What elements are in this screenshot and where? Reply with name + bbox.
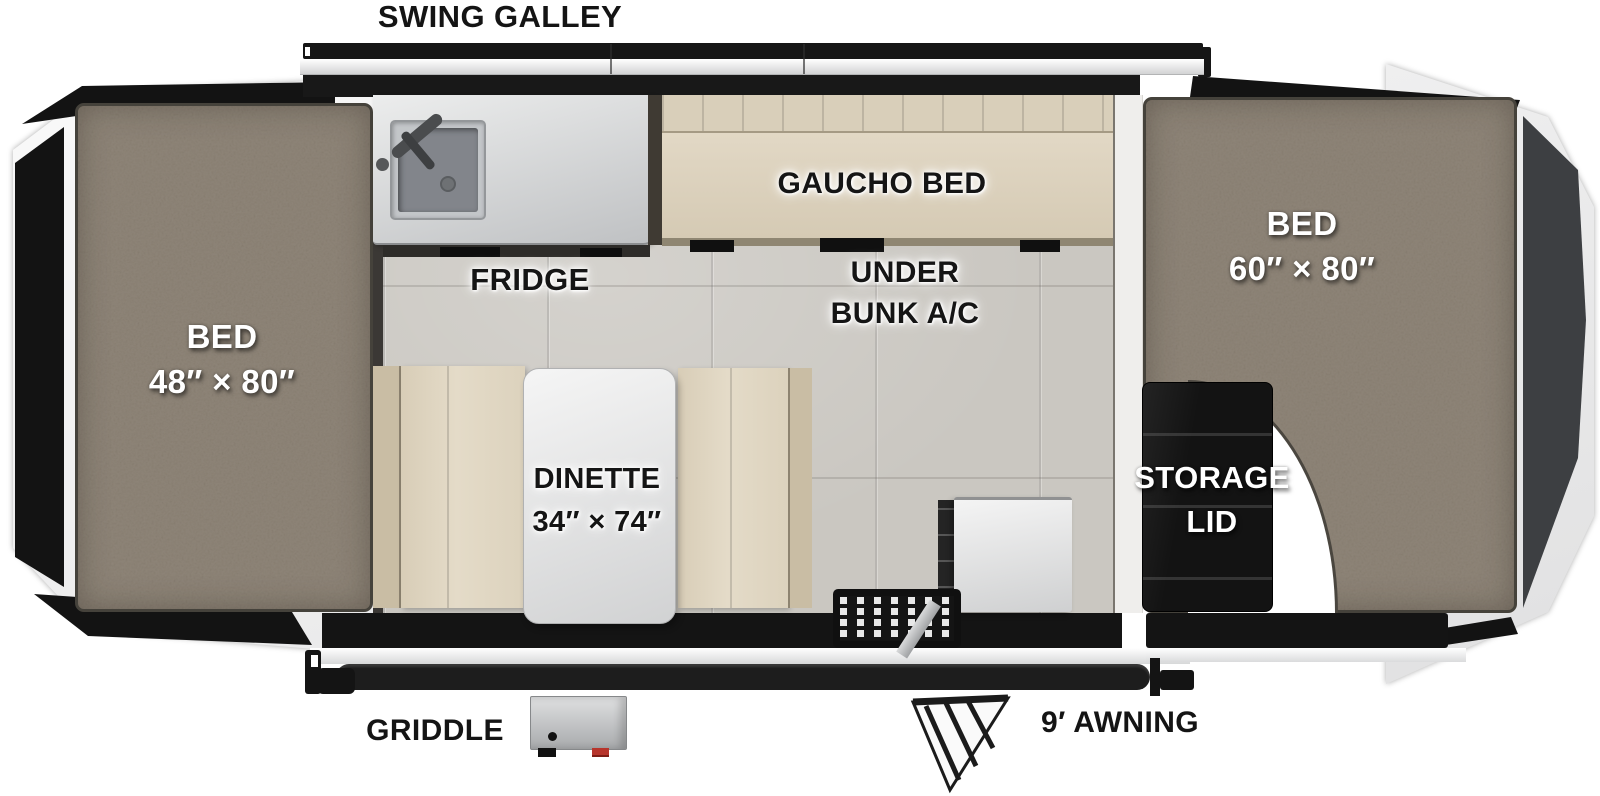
label-dinette-name: DINETTE — [512, 458, 682, 501]
gaucho-hinge — [820, 238, 884, 252]
label-storage-lid: STORAGE LID — [1092, 456, 1332, 544]
body-sill — [310, 648, 1190, 664]
griddle-knob — [548, 732, 557, 741]
counter-gaucho-gap — [648, 95, 662, 245]
label-bed-right-size: 60″ × 80″ — [1192, 247, 1412, 292]
label-swing-galley: SWING GALLEY — [330, 0, 670, 38]
entry-step-grate-tread — [840, 596, 954, 641]
sink-drain — [440, 176, 456, 192]
top-wall-band — [303, 75, 1140, 97]
label-dinette-size: 34″ × 74″ — [512, 501, 682, 544]
label-griddle: GRIDDLE — [345, 711, 525, 751]
label-storage-line2: LID — [1092, 500, 1332, 544]
gaucho-hinge — [1020, 240, 1060, 252]
swing-galley-rail — [303, 43, 1203, 59]
awning-roller-bar — [336, 664, 1150, 690]
swing-galley-trim — [300, 59, 1204, 75]
swing-galley-rail-notch — [305, 47, 310, 56]
cushion-seam — [447, 366, 449, 608]
entry-door-open — [896, 640, 1016, 795]
griddle-foot — [538, 748, 556, 757]
roller-left-hook — [317, 668, 355, 694]
body-sill-right — [1146, 648, 1466, 662]
galley-seam-left — [610, 44, 612, 74]
gaucho-bed-bolster — [662, 95, 1113, 133]
dinette-bench-right-backrest — [788, 368, 812, 608]
roller-right-hook — [1160, 670, 1194, 690]
cushion-seam — [730, 368, 732, 608]
camper-floorplan: SWING GALLEY FRIDGE UNDER BUNK A/C GAUCH… — [0, 0, 1600, 796]
faucet-base-icon — [376, 158, 389, 171]
label-fridge: FRIDGE — [430, 259, 630, 301]
roller-right-bracket — [1150, 658, 1160, 696]
label-under-bunk-line1: UNDER — [785, 252, 1025, 293]
label-bed-right: BED 60″ × 80″ — [1192, 202, 1412, 292]
dinette-bench-left — [401, 366, 525, 608]
label-bed-left: BED 48″ × 80″ — [112, 315, 332, 405]
gaucho-hinge — [690, 240, 734, 252]
label-dinette: DINETTE 34″ × 74″ — [512, 458, 682, 544]
griddle-gas-connector — [592, 748, 609, 757]
counter-hinge — [580, 248, 622, 257]
label-storage-line1: STORAGE — [1092, 456, 1332, 500]
griddle-unit — [530, 696, 627, 750]
galley-seam-right — [803, 44, 805, 74]
label-bed-right-name: BED — [1192, 202, 1412, 247]
bottom-right-mat — [1146, 613, 1448, 648]
dinette-bench-left-backrest — [373, 366, 401, 608]
label-awning: 9′ AWNING — [1000, 703, 1240, 743]
label-under-bunk-ac: UNDER BUNK A/C — [785, 252, 1025, 335]
label-gaucho-bed: GAUCHO BED — [732, 164, 1032, 204]
label-bed-left-name: BED — [112, 315, 332, 360]
dinette-bench-right — [678, 368, 788, 608]
cabinet — [954, 497, 1072, 612]
label-under-bunk-line2: BUNK A/C — [785, 293, 1025, 334]
roller-left-hook-gap — [311, 655, 318, 667]
label-bed-left-size: 48″ × 80″ — [112, 360, 332, 405]
counter-hinge — [440, 247, 500, 257]
